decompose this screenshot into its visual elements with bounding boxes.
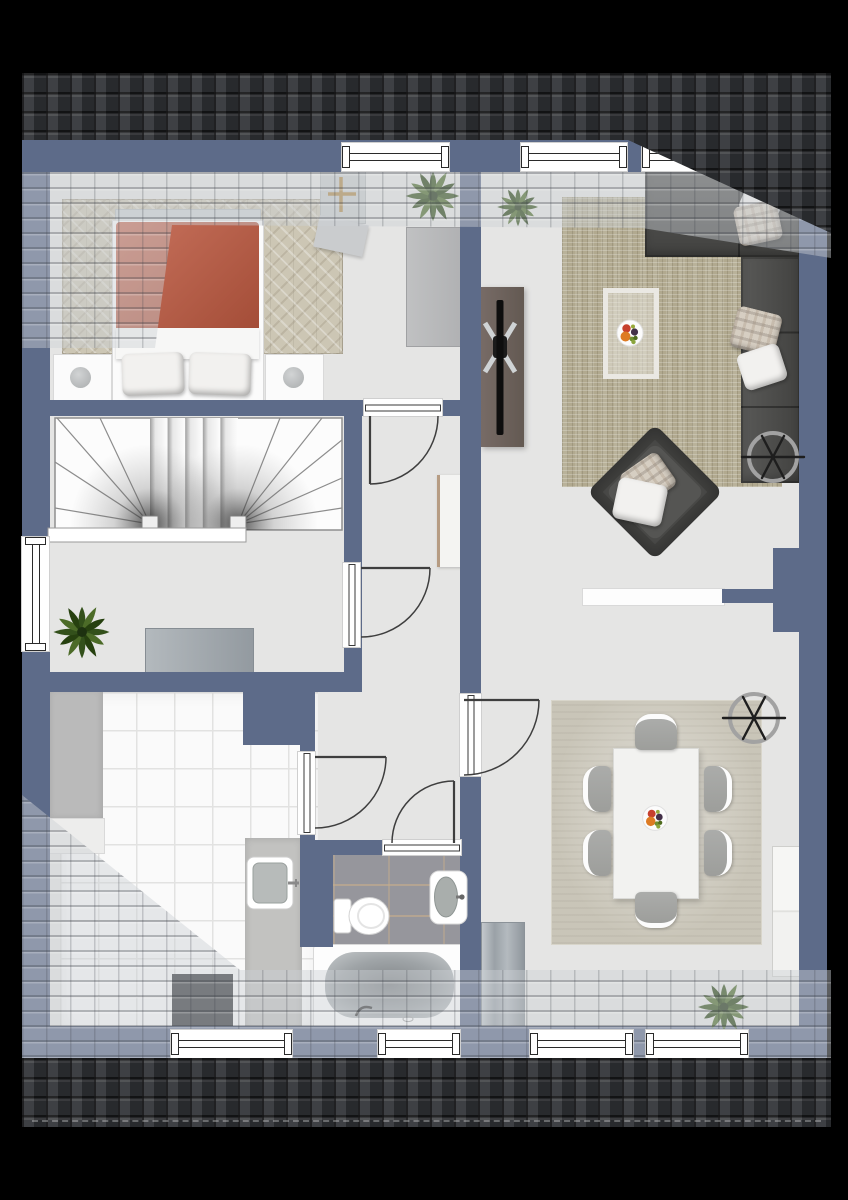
roof-edge-highlight: [32, 1120, 821, 1122]
floor-plan: [0, 0, 848, 1200]
roof-ridge-top: [22, 73, 831, 233]
layer-roof-dark: [0, 0, 848, 1200]
roof-ridge-bottom: [22, 1058, 831, 1127]
